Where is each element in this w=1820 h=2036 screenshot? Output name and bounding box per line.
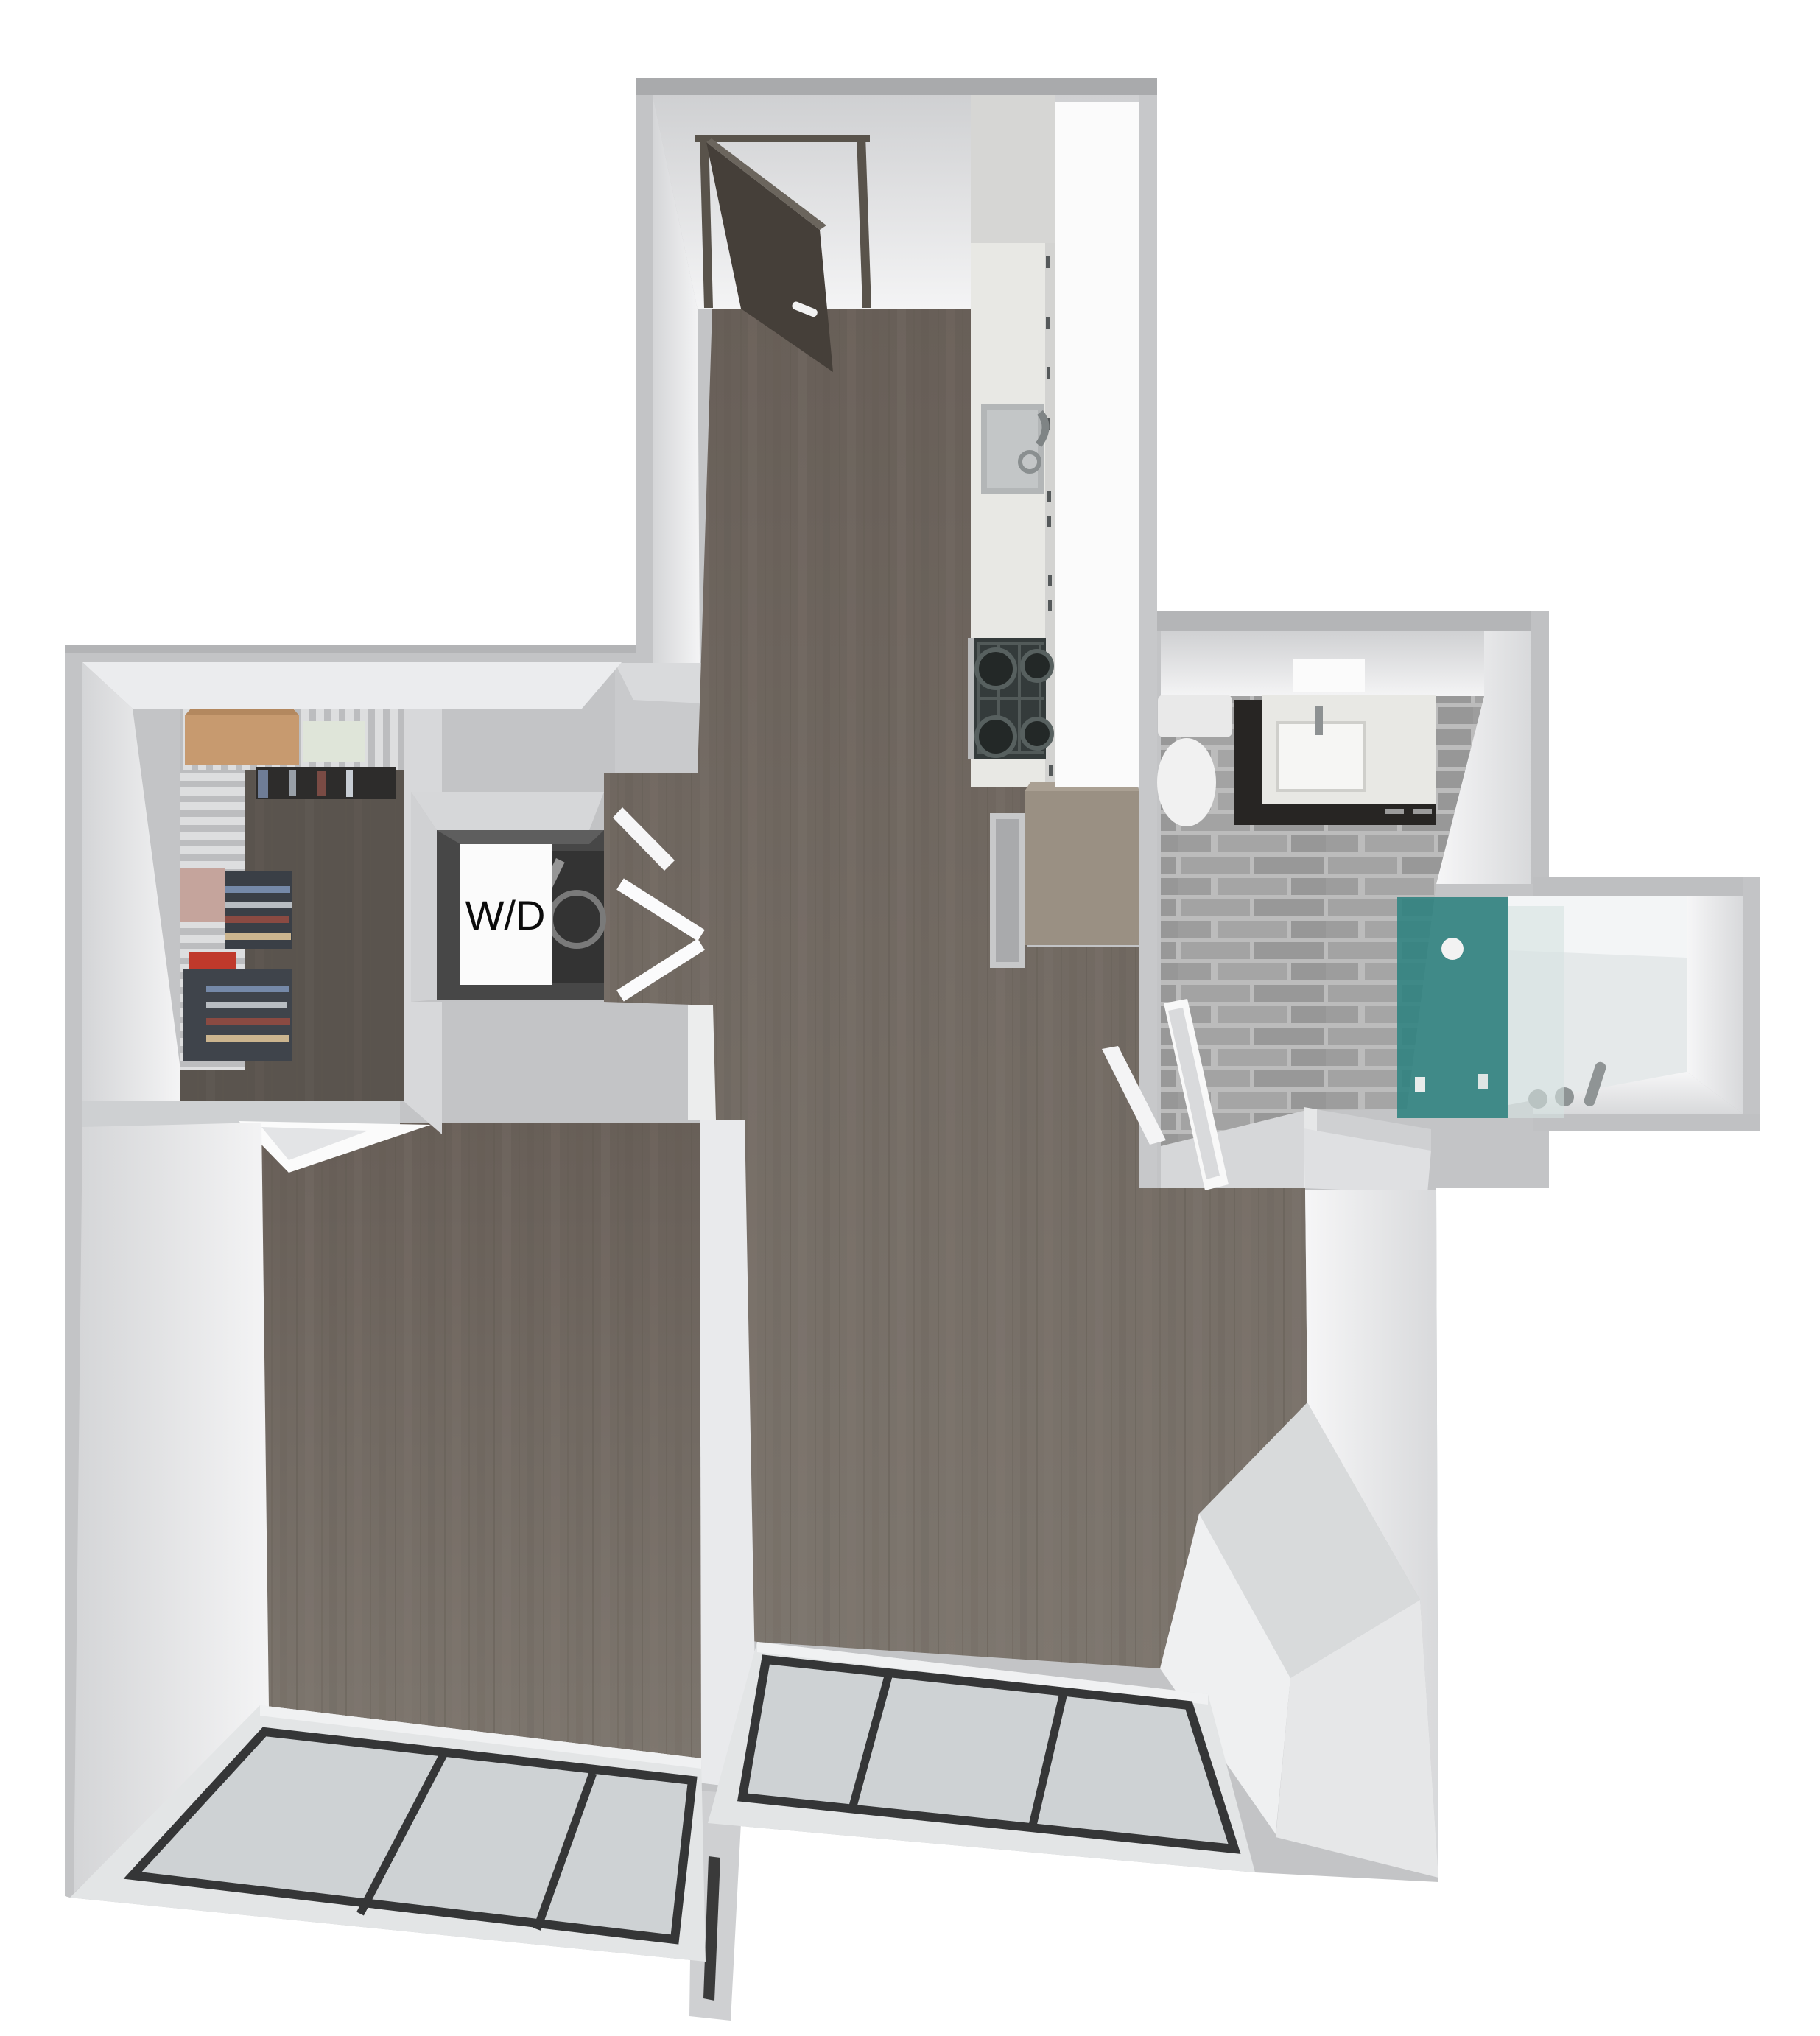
svg-text:W/D: W/D [465,892,546,938]
